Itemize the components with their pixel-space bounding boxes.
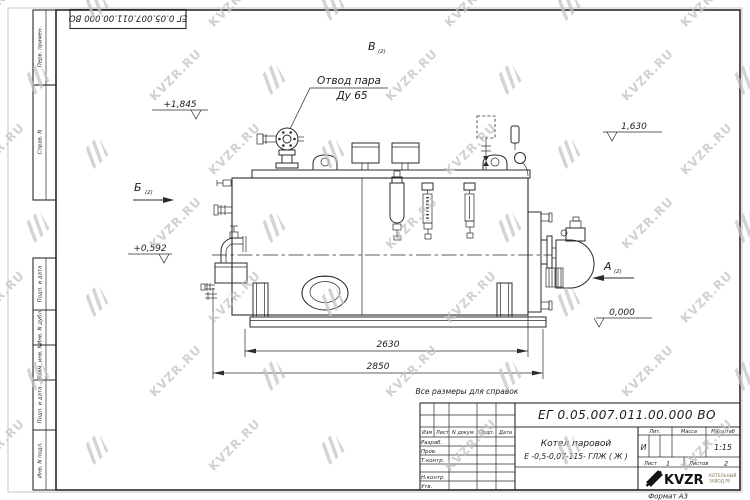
manhole (302, 276, 348, 310)
svg-text:0,000: 0,000 (609, 308, 635, 318)
row-prov: Пров. (421, 449, 437, 455)
svg-text:2850: 2850 (367, 362, 390, 372)
drawing-canvas: Перв. примен. Справ. N Подп. и дата Инв.… (0, 0, 750, 500)
elevation-mark-0592: +0,592 (128, 244, 172, 263)
svg-text:+1,845: +1,845 (163, 100, 197, 110)
steam-outlet-label-line2: Ду 65 (335, 90, 367, 102)
reference-note: Все размеры для справок (415, 387, 518, 396)
rear-end-plate (528, 212, 552, 312)
margin-label-perv-primen: Перв. примен. (38, 27, 44, 67)
sheet-value: 1 (666, 460, 670, 468)
svg-text:(2): (2) (145, 190, 153, 196)
lit-value: И (641, 443, 647, 452)
title-doc-number: ЕГ 0.05.007.011.00.000 ВО (538, 408, 716, 422)
corner-stamp-number: ЕГ 0.05.007.011.00.000 ВО (68, 13, 187, 23)
row-tkontr: Т.контр. (421, 458, 444, 464)
vent-pipe (511, 126, 528, 176)
lit-label: Лит. (648, 429, 661, 435)
svg-text:Б: Б (134, 181, 142, 194)
level-gauge-1 (422, 183, 433, 239)
kvzr-logo-icon (647, 471, 663, 486)
sensor-dashed-box (477, 116, 495, 170)
burner-assembly (201, 226, 247, 300)
boiler-view (201, 116, 594, 327)
water-level-column (390, 171, 404, 240)
row-nkontr: Н.контр. (421, 475, 445, 481)
dimension-2630: 2630 (245, 315, 528, 357)
col-izm: Изм (422, 430, 432, 436)
title-product-name: Котел паровой (541, 439, 612, 449)
margin-label-sprav-n: Справ. N (38, 130, 44, 155)
boiler-supports (250, 283, 546, 327)
col-list: Лист (435, 430, 450, 436)
level-gauge-2 (464, 183, 475, 238)
svg-text:2630: 2630 (377, 340, 400, 350)
feed-pump (541, 217, 594, 288)
svg-text:В: В (368, 40, 376, 53)
margin-columns: Перв. примен. Справ. N Подп. и дата Инв.… (33, 10, 56, 490)
boiler-shell (232, 170, 530, 315)
format-label: Формат А3 (648, 493, 688, 500)
drawing-sheet: Перв. примен. Справ. N Подп. и дата Инв.… (0, 0, 750, 500)
elevation-mark-1630: 1,630 (603, 122, 662, 141)
svg-text:(2): (2) (614, 269, 622, 275)
view-label-v: В (2) (368, 40, 386, 55)
company-name: KVZR (664, 473, 704, 488)
margin-label-podp-data-1: Подп. и дата (38, 266, 44, 303)
col-podp: Подп. (479, 430, 494, 436)
margin-label-inv-n-dubl: Инв. N дубл. (38, 309, 44, 344)
col-data: Дата (498, 430, 512, 436)
title-product-type: Е -0,5-0,07-115- ГЛЖ ( Ж ) (524, 452, 628, 461)
col-n-dokum: N докум. (452, 430, 475, 436)
company-line1: КОТЕЛЬНЫЙ (709, 473, 736, 478)
annotations: Отвод пара Ду 65 В (2) Б (2) А (2) +1,84… (128, 40, 662, 396)
margin-label-podp-data-2: Подп. и дата (38, 387, 44, 424)
elevation-mark-1845: +1,845 (152, 100, 208, 119)
massa-label: Масса (681, 429, 697, 435)
left-fittings (214, 180, 232, 215)
masshtab-label: Масштаб (711, 429, 735, 435)
sheet-label: Лист (643, 461, 658, 467)
steam-valve (257, 128, 304, 168)
view-label-a: А (2) (592, 260, 634, 281)
svg-text:А: А (603, 260, 612, 273)
corner-stamp: ЕГ 0.05.007.011.00.000 ВО (68, 10, 187, 29)
steam-outlet-callout: Отвод пара Ду 65 (290, 75, 388, 129)
safety-valve-covers (352, 143, 419, 170)
view-label-b: Б (2) (133, 181, 174, 203)
masshtab-value: 1:15 (714, 443, 732, 452)
margin-label-inv-n-podl: Инв. N подл. (38, 442, 44, 478)
svg-text:(2): (2) (378, 49, 386, 55)
row-utv: Утв. (421, 484, 432, 490)
sheets-value: 2 (724, 460, 728, 468)
sheets-label: Листов (688, 461, 708, 467)
row-razrab: Разраб. (421, 440, 442, 446)
elevation-mark-0000: 0,000 (594, 308, 652, 327)
dimension-2850: 2850 (213, 288, 543, 379)
company-line2: ЗАВОД.РУ (709, 479, 731, 484)
svg-text:1,630: 1,630 (621, 122, 647, 132)
svg-text:+0,592: +0,592 (133, 244, 167, 254)
steam-outlet-label-line1: Отвод пара (317, 75, 381, 87)
title-block: ЕГ 0.05.007.011.00.000 ВО Котел паровой … (420, 403, 740, 500)
margin-label-vzam-inv-n: Взам. инв. N (38, 344, 44, 379)
